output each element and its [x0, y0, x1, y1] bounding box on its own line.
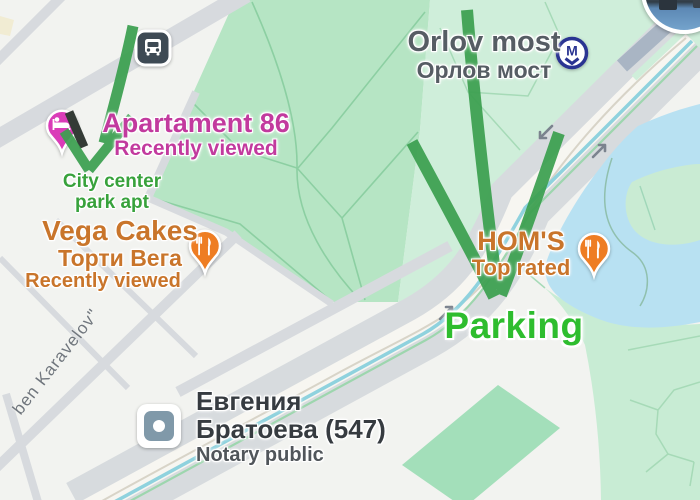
place-name-line2: Братоева (547)	[196, 415, 386, 443]
note-line2: park apt	[63, 193, 161, 214]
photo-detail	[693, 0, 700, 8]
place-category: Notary public	[196, 445, 386, 467]
place-alt-name: Орлов мост	[407, 58, 560, 83]
restaurant-pin-icon[interactable]	[574, 229, 614, 286]
label-orlov-most[interactable]: Orlov most Орлов мост	[407, 27, 560, 83]
place-alt-name: Торти Вега	[42, 246, 198, 271]
label-homs[interactable]: HOM'S Top rated	[472, 227, 571, 280]
generic-poi-icon[interactable]	[136, 403, 182, 454]
place-name: Vega Cakes	[42, 215, 198, 246]
place-status: Recently viewed	[102, 138, 290, 161]
place-name: Orlov most	[407, 26, 560, 58]
annotation-note: City center park apt	[63, 172, 161, 213]
lodging-pin-icon[interactable]	[42, 106, 82, 163]
parking-text: Parking	[444, 305, 583, 346]
place-name-line1: Евгения	[196, 386, 301, 416]
photo-detail	[659, 0, 677, 10]
map-view[interactable]: ben Karavelov" M	[0, 0, 700, 500]
place-status: Top rated	[472, 256, 571, 280]
label-apartament[interactable]: Apartament 86 Recently viewed	[102, 109, 290, 161]
label-vega-cakes[interactable]: Vega Cakes Торти Вега Recently viewed	[42, 216, 198, 293]
place-name: Apartament 86	[102, 108, 290, 138]
svg-text:M: M	[566, 43, 578, 59]
place-name: HOM'S	[477, 226, 564, 256]
bus-stop-icon[interactable]	[133, 28, 173, 73]
note-line1: City center	[63, 171, 161, 192]
place-status: Recently viewed	[8, 271, 198, 293]
annotation-parking: Parking	[444, 306, 583, 346]
label-notary[interactable]: Евгения Братоева (547) Notary public	[196, 387, 386, 467]
